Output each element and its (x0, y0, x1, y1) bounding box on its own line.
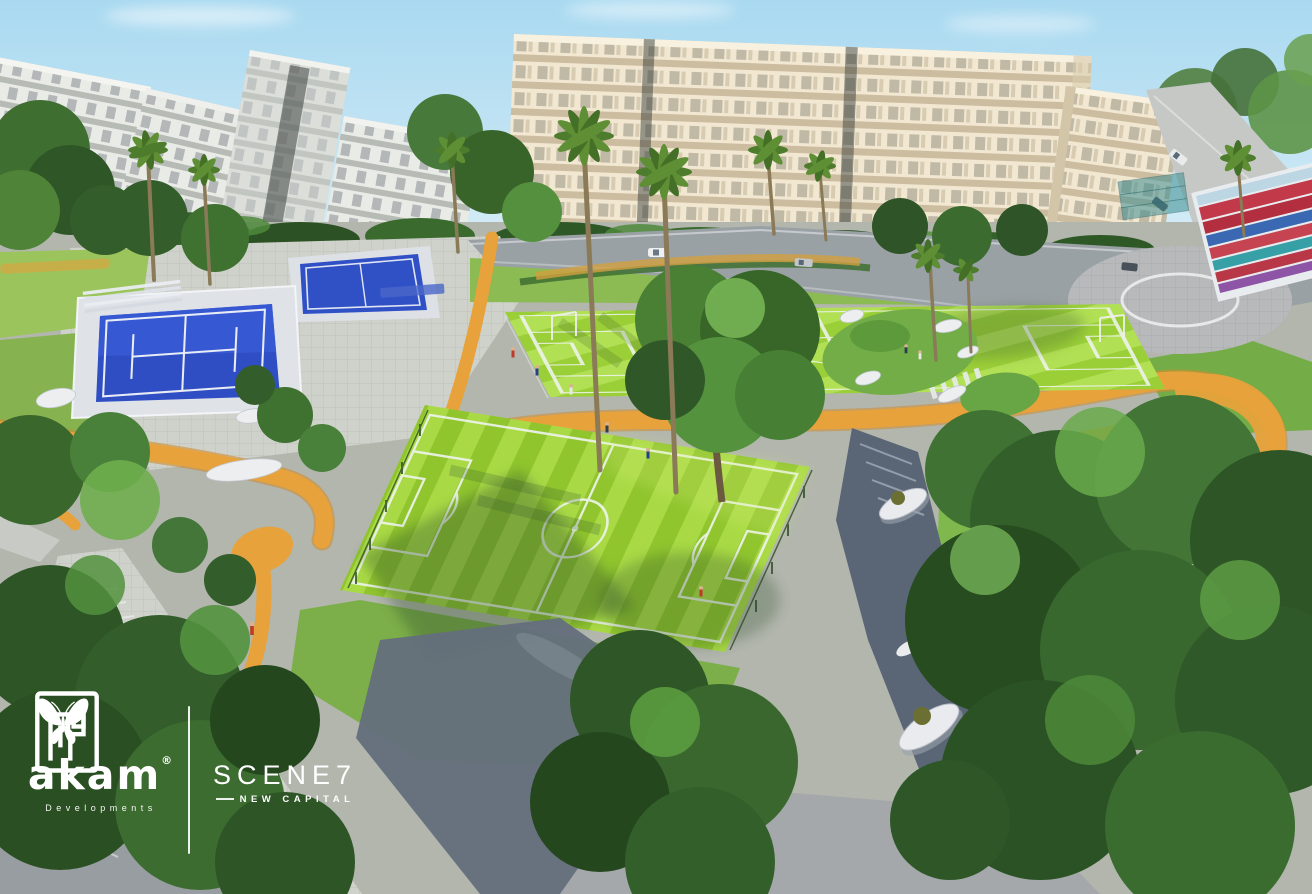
akam-logo: akam® Developments (34, 747, 168, 813)
butterfly-icon (34, 690, 92, 752)
akam-subtitle: Developments (45, 803, 157, 813)
logo-overlay: akam® Developments SCENE7 NEW CAPITAL (34, 690, 364, 870)
scene7-subtitle: NEW CAPITAL (216, 794, 355, 805)
scene7-wordmark: SCENE7 (213, 762, 357, 789)
scene7-logo: SCENE7 NEW CAPITAL (210, 756, 360, 805)
tree-cluster-right (890, 395, 1312, 894)
subtitle-dash (216, 798, 234, 800)
logo-divider (188, 706, 190, 854)
registered-mark: ® (161, 754, 174, 767)
rendered-aerial-view: akam® Developments SCENE7 NEW CAPITAL (0, 0, 1312, 894)
padel-court-2 (288, 246, 445, 322)
